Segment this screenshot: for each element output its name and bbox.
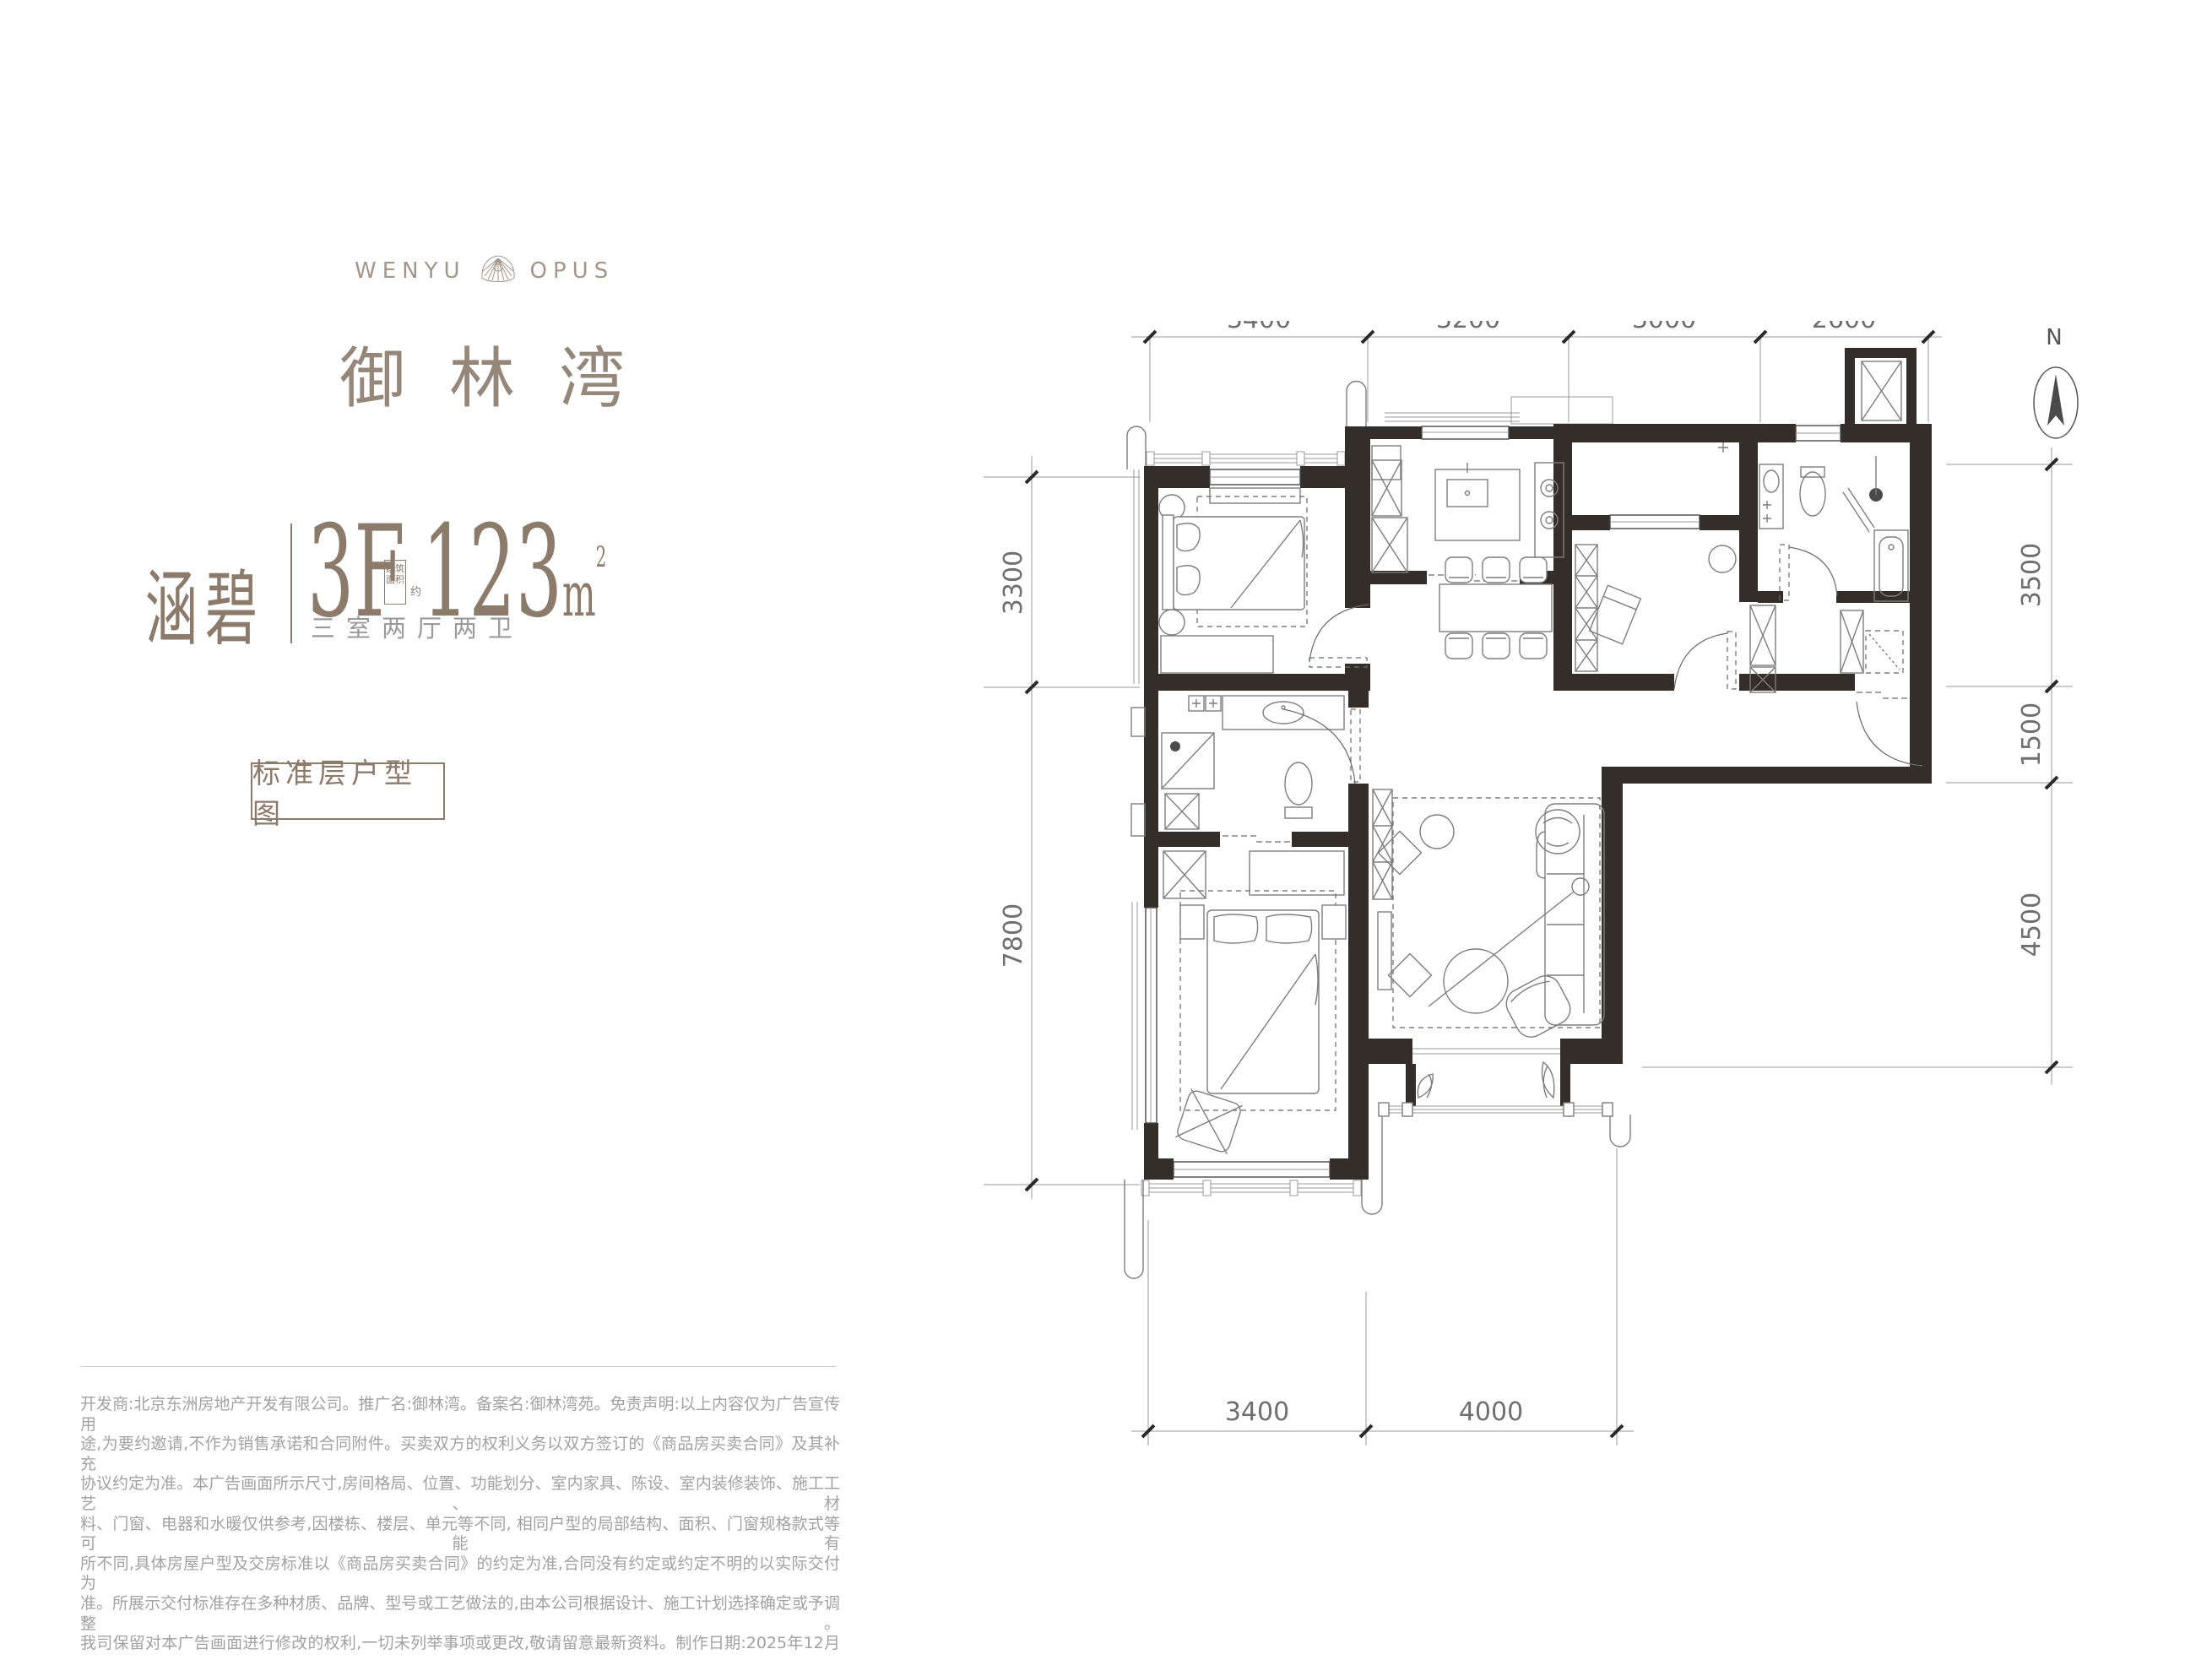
bedroom1-headboard bbox=[1163, 515, 1174, 610]
pipe-shaft-2 bbox=[1131, 804, 1145, 836]
utility-platform bbox=[1718, 442, 1728, 453]
floorplan-drawing: 3400 3200 3000 2600 3400 4000 3300 bbox=[971, 321, 2094, 1452]
floorplan-tag-label: 标准层户型图 bbox=[252, 751, 443, 832]
dim-top-4: 2600 bbox=[1812, 321, 1876, 334]
north-label: N bbox=[2046, 325, 2062, 350]
area-caption-box: 建筑 面积 bbox=[384, 560, 406, 605]
area-caption-line2: 面积 bbox=[385, 574, 405, 585]
master-wardrobe bbox=[1250, 851, 1344, 895]
headline-divider bbox=[290, 523, 292, 643]
corridor-cabinet-2 bbox=[1841, 610, 1903, 673]
bathroom-main bbox=[1759, 456, 1908, 601]
dim-left-2: 7800 bbox=[999, 903, 1028, 968]
brand-name: 御林湾 bbox=[339, 326, 669, 420]
dim-right-1: 3500 bbox=[2017, 543, 2047, 607]
master-armchair bbox=[1175, 1089, 1242, 1154]
floorplan-tag: 标准层户型图 bbox=[251, 762, 445, 820]
hall-cabinet bbox=[1373, 789, 1392, 899]
bathroom2-vanity bbox=[1189, 696, 1344, 730]
bedroom3-door-arc bbox=[1674, 633, 1727, 689]
dining-area bbox=[1439, 557, 1552, 659]
bathtub-icon bbox=[1874, 530, 1908, 601]
kitchen-sink bbox=[1447, 480, 1488, 507]
dining-table bbox=[1439, 584, 1552, 632]
disclaimer-line: 途,为要约邀请,不作为销售承诺和合同附件。买卖双方的权利义务以双方签订的《商品房… bbox=[80, 1435, 840, 1474]
bedroom1-wardrobe bbox=[1161, 636, 1273, 673]
dim-left-1: 3300 bbox=[999, 551, 1028, 615]
lotus-icon bbox=[478, 251, 518, 291]
bathroom2-shower bbox=[1162, 733, 1214, 789]
bedroom3 bbox=[1575, 545, 1736, 689]
side-pouf bbox=[1420, 815, 1454, 849]
area-superscript: 2 bbox=[596, 540, 607, 574]
bathroom2-sliding-door bbox=[1223, 836, 1292, 842]
toilet2-icon bbox=[1285, 762, 1312, 818]
tv-cabinet bbox=[1378, 912, 1391, 990]
pipe-shaft-1 bbox=[1131, 708, 1145, 736]
page: WENYU OPUS 御林湾 涵碧 3F 建筑 面积 约 123m2 三室两厅两… bbox=[0, 0, 2212, 1660]
disclaimer-line: 协议约定为准。本广告画面所示尺寸,房间格局、位置、功能划分、室内家具、陈设、室内… bbox=[80, 1474, 840, 1514]
bedroom3-door-leaf bbox=[1727, 632, 1736, 689]
dims-left: 3300 7800 bbox=[984, 456, 1140, 1199]
kitchen-cabinet-column bbox=[1372, 460, 1407, 572]
bedroom3-pouf bbox=[1709, 545, 1736, 572]
disclaimer-line: 开发商:北京东洲房地产开发有限公司。推广名:御林湾。备案名:御林湾苑。免责声明:… bbox=[80, 1395, 840, 1435]
dims-right: 3500 1500 4500 bbox=[1642, 448, 2073, 1085]
master-bed bbox=[1207, 910, 1319, 1093]
dim-bottom-1: 3400 bbox=[1225, 1397, 1289, 1427]
unit-layout: 三室两厅两卫 bbox=[311, 609, 523, 644]
washer-icon bbox=[1165, 794, 1199, 829]
living-rug bbox=[1393, 798, 1600, 1028]
living-room bbox=[1378, 798, 1604, 1042]
shower-icon bbox=[1843, 456, 1883, 532]
area-unit: m bbox=[562, 559, 596, 630]
disclaimer-line: 我司保留对本广告画面进行修改的权利,一切未列举事项或更改,敬请留意最新资料。制作… bbox=[80, 1634, 840, 1654]
bedroom1-nightstand-bottom bbox=[1159, 610, 1185, 635]
disclaimer-divider bbox=[80, 1366, 836, 1367]
brand-logo: WENYU OPUS bbox=[355, 252, 608, 290]
logo-wenyu-label: WENYU bbox=[355, 258, 466, 284]
dim-right-2: 1500 bbox=[2017, 703, 2047, 767]
master-nightstand-right bbox=[1322, 905, 1346, 939]
disclaimer-line: 准。所展示交付标准存在多种材质、品牌、型号或工艺做法的,由本公司根据设计、施工计… bbox=[80, 1594, 840, 1634]
dim-top-2: 3200 bbox=[1436, 321, 1500, 334]
bedroom1 bbox=[1159, 495, 1369, 673]
master-nightstand-left bbox=[1180, 905, 1204, 939]
disclaimer-line: 所不同,具体房屋户型及交房标准以《商品房买卖合同》的约定为准,合同没有约定或约定… bbox=[80, 1554, 840, 1594]
bedroom1-bed bbox=[1174, 517, 1304, 610]
toilet-icon bbox=[1800, 467, 1825, 516]
floor-lamp bbox=[1429, 892, 1574, 1006]
coffee-table bbox=[1444, 949, 1508, 1013]
dim-top-3: 3000 bbox=[1632, 321, 1696, 334]
bathroom-main-vanity bbox=[1759, 464, 1783, 529]
north-arrow-icon: N bbox=[2034, 325, 2078, 438]
bedroom1-door-arc bbox=[1309, 605, 1369, 662]
disclaimer-line: 料、门窗、电器和水暖仅供参考,因楼栋、楼层、单元等不同, 相同户型的局部结构、面… bbox=[80, 1515, 840, 1554]
area-caption-line1: 建筑 bbox=[385, 563, 405, 574]
dims-top: 3400 3200 3000 2600 bbox=[1131, 321, 1942, 422]
side-table-2 bbox=[1389, 954, 1432, 997]
sofa bbox=[1537, 804, 1604, 1025]
unit-name: 涵碧 bbox=[145, 542, 265, 661]
bathroom2 bbox=[1131, 696, 1344, 842]
side-table-1 bbox=[1379, 832, 1422, 875]
bathroom-main-door-arc bbox=[1789, 547, 1837, 596]
elevator-shaft bbox=[1845, 348, 1917, 426]
logo-opus-label: OPUS bbox=[530, 258, 615, 284]
master-bedroom bbox=[1175, 891, 1346, 1153]
area-approx: 约 bbox=[410, 583, 421, 599]
dim-top-1: 3400 bbox=[1227, 321, 1291, 334]
dim-bottom-2: 4000 bbox=[1459, 1397, 1523, 1427]
dim-right-3: 4500 bbox=[2017, 892, 2047, 957]
lounge-chair bbox=[1501, 971, 1575, 1043]
master-suite-door bbox=[1283, 709, 1360, 784]
bedroom3-closet bbox=[1575, 545, 1597, 671]
disclaimer: 开发商:北京东洲房地产开发有限公司。推广名:御林湾。备案名:御林湾苑。免责声明:… bbox=[80, 1395, 840, 1654]
